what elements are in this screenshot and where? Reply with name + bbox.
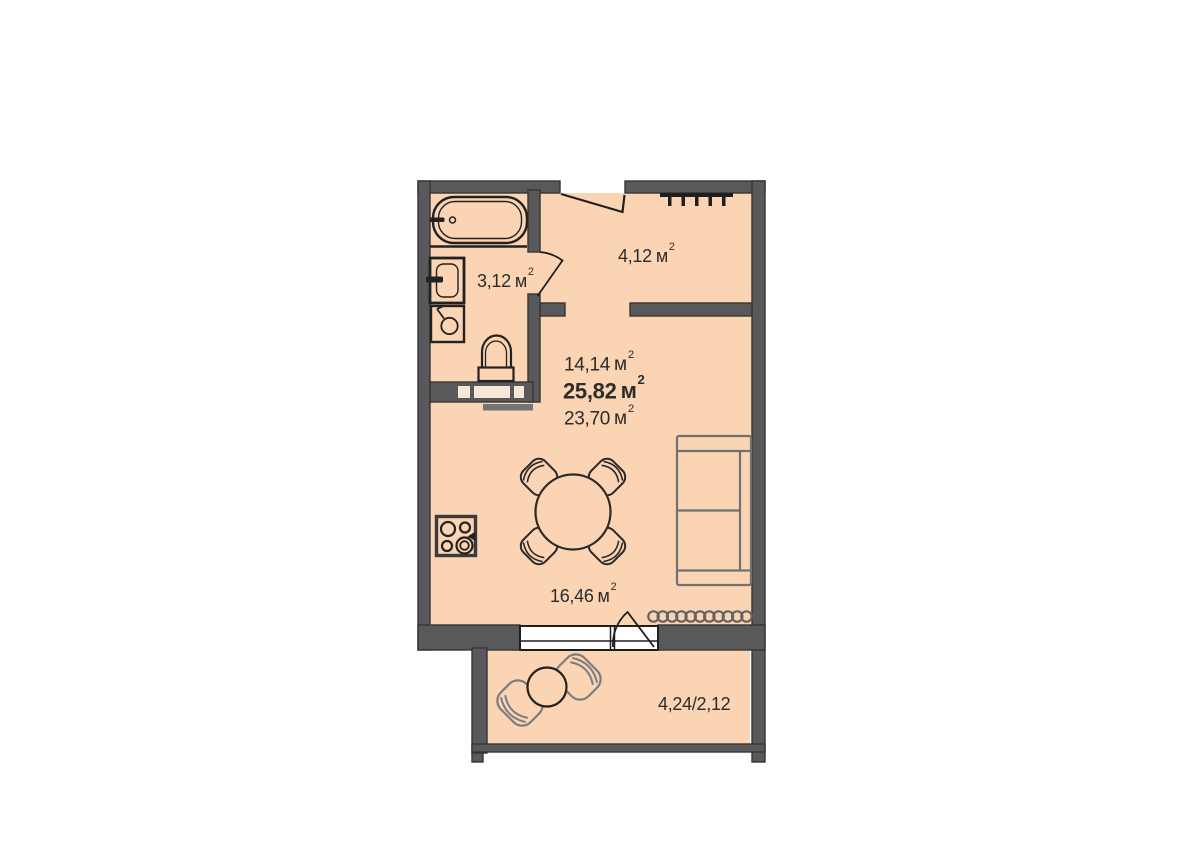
sink-icon bbox=[426, 258, 464, 303]
dining-table-icon bbox=[536, 475, 611, 550]
window-icon bbox=[520, 626, 658, 650]
wall-bathroom-stub bbox=[540, 303, 565, 316]
wall-top-right bbox=[625, 181, 765, 193]
summary-living-area-label: 14,14м2 bbox=[564, 355, 634, 374]
wall-hallway-divider bbox=[630, 303, 752, 316]
wall-balcony-left bbox=[472, 648, 487, 753]
wall-bottom-left bbox=[418, 625, 520, 650]
bathroom-area-label: 3,12м2 bbox=[477, 272, 534, 290]
bathtub-icon bbox=[430, 197, 528, 243]
floor-plan-canvas: 3,12м2 4,12м2 14,14м2 25,82м2 23,70м2 16… bbox=[0, 0, 1200, 848]
vent-shaft-icon bbox=[458, 386, 524, 398]
hallway-area-label: 4,12м2 bbox=[618, 247, 675, 265]
living-room-area-label: 16,46м2 bbox=[550, 587, 616, 605]
summary-total-area-label: 25,82м2 bbox=[563, 379, 645, 402]
balcony-area-label: 4,24/2,12 bbox=[658, 695, 735, 713]
wall-balcony-left-stub bbox=[472, 753, 483, 762]
wall-left bbox=[418, 181, 430, 650]
toilet-icon bbox=[479, 336, 514, 382]
wall-bathroom-upper bbox=[528, 190, 540, 252]
bathroom-threshold-bar bbox=[483, 404, 533, 411]
wall-bottom-right bbox=[658, 625, 765, 650]
wall-balcony-bottom bbox=[472, 744, 765, 752]
sofa-icon bbox=[677, 436, 751, 585]
wall-right bbox=[752, 181, 765, 762]
balcony-table-icon bbox=[528, 668, 567, 707]
summary-reduced-area-label: 23,70м2 bbox=[564, 409, 634, 428]
threshold-comb-icon bbox=[660, 193, 733, 206]
